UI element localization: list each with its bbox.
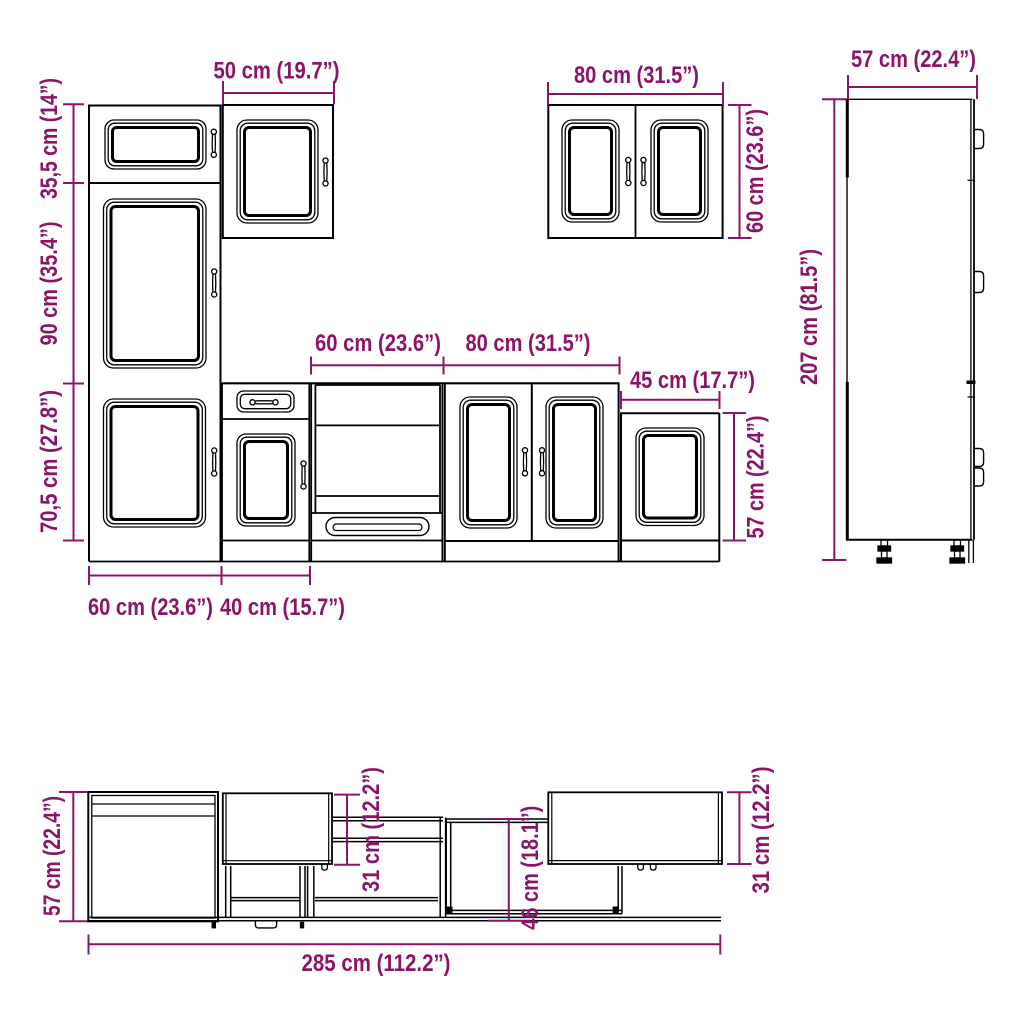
- svg-text:57 cm (22.4”): 57 cm (22.4”): [851, 46, 976, 73]
- svg-text:57 cm (22.4”): 57 cm (22.4”): [39, 796, 66, 916]
- svg-text:80 cm (31.5”): 80 cm (31.5”): [466, 330, 591, 357]
- svg-text:40 cm (15.7”): 40 cm (15.7”): [220, 594, 345, 621]
- svg-text:35,5 cm (14”): 35,5 cm (14”): [36, 78, 63, 199]
- svg-text:31 cm (12.2”): 31 cm (12.2”): [748, 767, 775, 894]
- svg-text:285 cm (112.2”): 285 cm (112.2”): [302, 950, 451, 977]
- svg-text:207 cm (81.5”): 207 cm (81.5”): [796, 249, 823, 385]
- svg-text:70,5 cm (27.8”): 70,5 cm (27.8”): [36, 390, 63, 533]
- svg-text:60 cm (23.6”): 60 cm (23.6”): [742, 109, 769, 233]
- svg-text:60 cm (23.6”): 60 cm (23.6”): [88, 594, 213, 621]
- svg-text:80 cm (31.5”): 80 cm (31.5”): [574, 62, 699, 89]
- svg-text:31 cm (12.2”): 31 cm (12.2”): [358, 767, 385, 892]
- svg-text:46 cm (18.1”): 46 cm (18.1”): [517, 806, 544, 930]
- svg-text:60 cm (23.6”): 60 cm (23.6”): [315, 330, 441, 357]
- svg-text:90 cm (35.4”): 90 cm (35.4”): [36, 222, 63, 346]
- svg-text:57 cm (22.4”): 57 cm (22.4”): [743, 416, 770, 539]
- svg-text:45 cm (17.7”): 45 cm (17.7”): [630, 367, 755, 394]
- svg-text:50 cm (19.7”): 50 cm (19.7”): [214, 58, 340, 85]
